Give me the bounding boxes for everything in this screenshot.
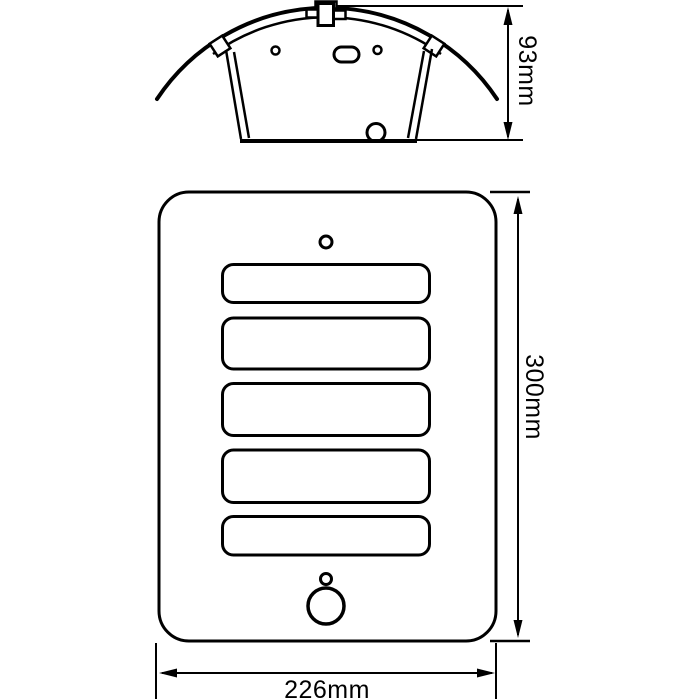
width-arrow-right [477,669,495,678]
louver-slat-1 [223,265,430,303]
left-wall-inner-line [234,52,249,138]
depth-arrow-down [504,122,513,140]
width-dimension: 226mm [159,669,495,700]
faceplate-bottom-hole [321,574,332,585]
top-profile-view: 93mm [157,2,541,142]
louver-slat-3 [223,384,430,436]
front-view: 300mm 226mm [156,192,548,700]
technical-drawing-canvas: 93mm 300mm [0,0,700,700]
cable-gland-bump [367,124,385,142]
depth-dimension-label: 93mm [513,35,541,106]
left-wall-outer-line [226,50,241,139]
louver-slat-4 [223,450,430,503]
height-dimension: 300mm [514,196,549,638]
depth-dimension: 93mm [504,7,542,140]
height-arrow-down [514,620,523,638]
right-screw-hole [374,46,382,54]
faceplate-top-hole [320,236,332,248]
louver-slat-5 [223,517,430,556]
left-screw-hole [272,47,280,55]
clip-stem [318,4,334,26]
sensor-circle [308,588,344,624]
right-wall-inner-line [408,51,424,138]
height-arrow-up [514,196,523,214]
height-dimension-label: 300mm [520,354,548,440]
keyhole-slot [334,47,359,62]
width-arrow-left [159,669,177,678]
width-dimension-label: 226mm [284,676,370,700]
right-wall-outer-line [416,49,432,139]
louver-slat-2 [223,318,430,369]
depth-arrow-up [504,7,513,25]
